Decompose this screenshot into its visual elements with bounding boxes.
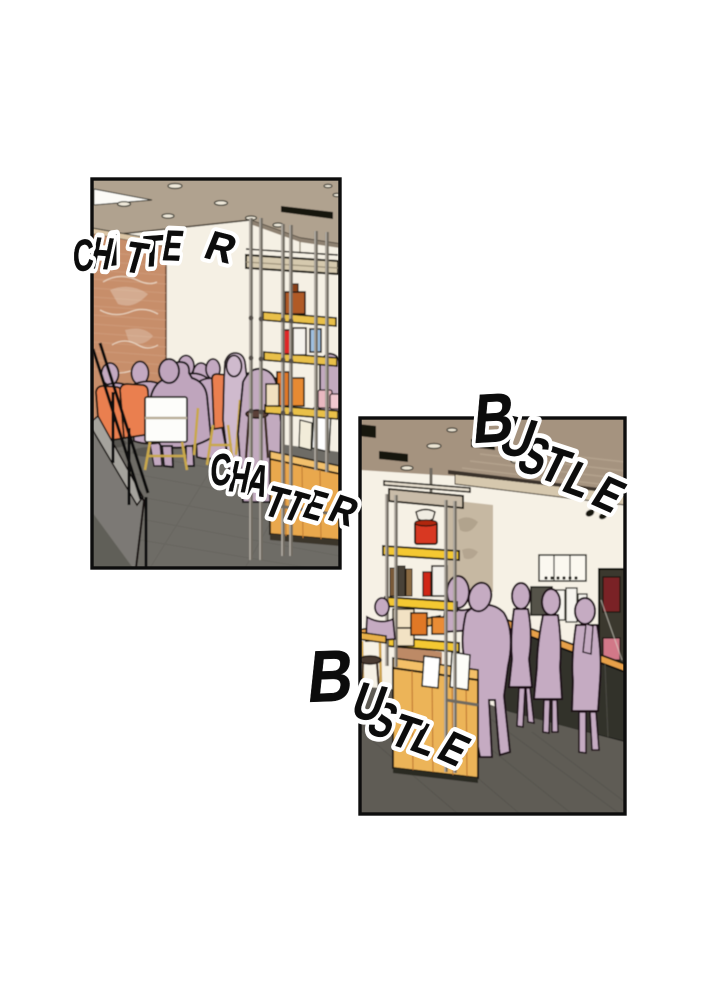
svg-text:B: B [471, 379, 518, 458]
svg-text:B: B [304, 635, 357, 718]
svg-text:C: C [210, 444, 233, 496]
svg-text:C: C [73, 229, 94, 282]
